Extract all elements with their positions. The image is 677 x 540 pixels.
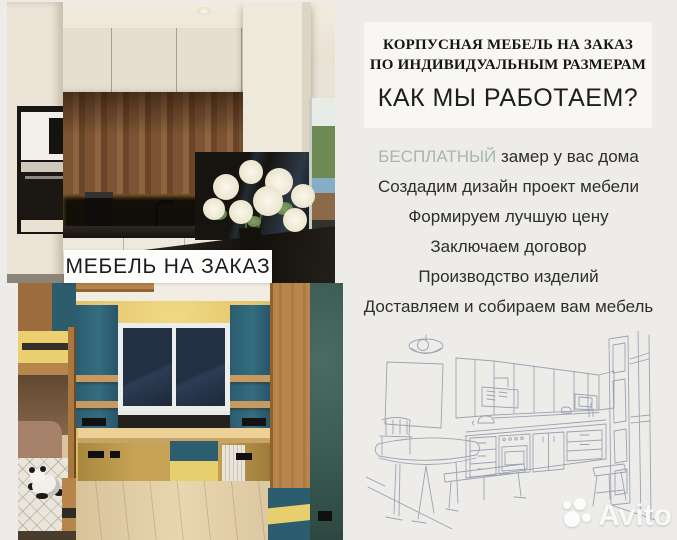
flower bbox=[253, 186, 283, 216]
photo-label-text: МЕБЕЛЬ НА ЗАКАЗ bbox=[65, 255, 270, 279]
steps-list: БЕСПЛАТНЫЙ замер у вас дома Создадим диз… bbox=[340, 147, 677, 327]
flower bbox=[203, 198, 225, 220]
flower bbox=[213, 174, 239, 200]
upper-cabinets bbox=[47, 28, 259, 98]
bunk-bed-cabinet bbox=[18, 283, 52, 331]
step-item: БЕСПЛАТНЫЙ замер у вас дома bbox=[340, 147, 677, 167]
step-item: Производство изделий bbox=[340, 267, 677, 287]
ceiling-light bbox=[197, 7, 211, 15]
radiator bbox=[222, 445, 245, 481]
avito-logo-icon bbox=[562, 498, 594, 534]
hood-cabinet bbox=[243, 2, 311, 152]
wall-shelf bbox=[76, 375, 118, 382]
avito-watermark: Avito bbox=[562, 498, 672, 534]
teal-cabinet-left bbox=[74, 305, 118, 428]
photo-label: МЕБЕЛЬ НА ЗАКАЗ bbox=[64, 250, 272, 283]
textured-wall bbox=[310, 283, 343, 540]
step-item: Заключаем договор bbox=[340, 237, 677, 257]
wall-shelf bbox=[230, 401, 270, 408]
kitchen-photo bbox=[7, 2, 335, 283]
header-line-2: ПО ИНДИВИДУАЛЬНЫМ РАЗМЕРАМ bbox=[364, 55, 652, 75]
kids-room-photo bbox=[18, 283, 343, 540]
wall-shelf bbox=[230, 375, 270, 382]
flower bbox=[239, 160, 263, 184]
faucet bbox=[155, 200, 174, 227]
room-window bbox=[118, 323, 230, 411]
avito-watermark-text: Avito bbox=[598, 499, 672, 533]
page-title: КАК МЫ РАБОТАЕМ? bbox=[364, 84, 652, 113]
header-card: КОРПУСНАЯ МЕБЕЛЬ НА ЗАКАЗ ПО ИНДИВИДУАЛЬ… bbox=[364, 22, 652, 128]
teal-drawers bbox=[268, 488, 313, 540]
flower bbox=[291, 184, 315, 208]
power-strip bbox=[242, 418, 266, 426]
step-item: Доставляем и собираем вам мебель bbox=[340, 297, 677, 317]
furniture-ad-page: МЕБЕЛЬ НА ЗАКАЗ КОРПУСНАЯ МЕБЕЛЬ НА ЗАКА… bbox=[0, 0, 677, 540]
wall-shelf bbox=[76, 401, 118, 408]
flower bbox=[283, 208, 307, 232]
step-item: Формируем лучшую цену bbox=[340, 207, 677, 227]
header-line-1: КОРПУСНАЯ МЕБЕЛЬ НА ЗАКАЗ bbox=[364, 35, 652, 55]
flower bbox=[229, 200, 253, 224]
step-item: Создадим дизайн проект мебели bbox=[340, 177, 677, 197]
power-strip bbox=[82, 418, 106, 426]
teal-cabinet-right bbox=[230, 305, 270, 431]
